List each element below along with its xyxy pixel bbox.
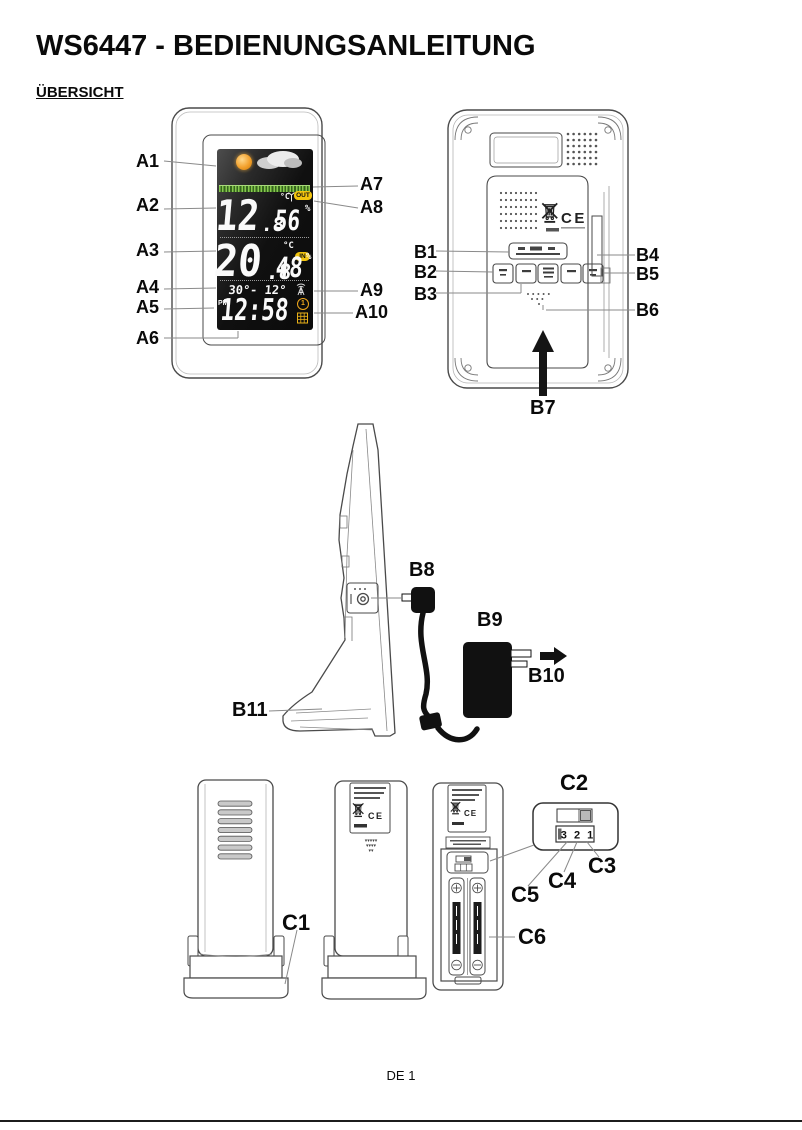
- dc-plug-body: [411, 587, 435, 613]
- side-view-console: [283, 424, 395, 736]
- label-c5: C5: [511, 884, 539, 906]
- label-a8: A8: [360, 198, 383, 216]
- svg-text:▾▾: ▾▾: [368, 848, 374, 854]
- label-a1: A1: [136, 152, 159, 170]
- indoor-temp-unit: °C: [283, 242, 294, 251]
- label-a9: A9: [360, 281, 383, 299]
- rf-tower-icon: [294, 281, 308, 296]
- vent-slats: [218, 801, 252, 859]
- sensor-front-view: [184, 780, 288, 998]
- adapter-cable: [421, 613, 429, 717]
- ce-mark: CE: [368, 811, 384, 821]
- ce-mark: CE: [464, 809, 477, 818]
- plug-pin: [511, 661, 527, 667]
- indoor-humidity-unit: %: [306, 253, 311, 262]
- label-b4: B4: [636, 246, 659, 264]
- label-c2: C2: [560, 772, 588, 794]
- label-a3: A3: [136, 241, 159, 259]
- grid-indicator-icon: [297, 312, 308, 324]
- adapter-body: [463, 642, 512, 718]
- ce-mark: CE: [561, 210, 587, 227]
- manual-page: WS6447 - BEDIENUNGSANLEITUNG ÜBERSICHT: [0, 0, 802, 1130]
- label-a7: A7: [360, 175, 383, 193]
- sensor-battery-view: CE: [433, 783, 503, 990]
- label-b1: B1: [414, 243, 437, 261]
- diagram-artwork: CE: [0, 0, 802, 1130]
- label-b2: B2: [414, 263, 437, 281]
- sensor-stand-base: [184, 978, 288, 998]
- plug-pin: [511, 650, 531, 657]
- footer-rule: [0, 1120, 802, 1122]
- label-b7: B7: [530, 398, 556, 418]
- outdoor-humidity-value: 56: [274, 207, 302, 235]
- cloud-icon: [255, 150, 303, 170]
- label-b10: B10: [528, 666, 565, 686]
- dc-plug-tip: [402, 594, 412, 601]
- sensor-stand-base: [322, 978, 426, 999]
- label-c4: C4: [548, 870, 576, 892]
- outdoor-temp-value: 12: [214, 195, 261, 237]
- label-a10: A10: [355, 303, 388, 321]
- label-a4: A4: [136, 278, 159, 296]
- label-c6: C6: [518, 926, 546, 948]
- outdoor-badge: OUT: [294, 191, 312, 200]
- label-b9: B9: [477, 610, 503, 630]
- label-c1: C1: [282, 912, 310, 934]
- label-b11: B11: [232, 700, 268, 720]
- label-a5: A5: [136, 298, 159, 316]
- indoor-humidity-value: 48: [275, 254, 304, 282]
- alarm1-icon: 1: [297, 298, 309, 310]
- sensor-back-view: CE ▾▾▾▾▾ ▾▾▾▾ ▾▾: [322, 781, 426, 999]
- label-a2: A2: [136, 196, 159, 214]
- back-view-console: CE: [448, 110, 628, 396]
- label-b3: B3: [414, 285, 437, 303]
- label-a6: A6: [136, 329, 159, 347]
- label-c3: C3: [588, 855, 616, 877]
- label-b6: B6: [636, 301, 659, 319]
- dip-switch-inset: 3 2 1: [533, 803, 618, 850]
- sun-icon: [236, 154, 252, 170]
- label-b8: B8: [409, 560, 435, 580]
- clock-time: 12:58: [219, 296, 289, 326]
- lcd-display: 12 .8 °C OUT 56 % 20 .8 °C IN 48 % 30°- …: [217, 149, 313, 330]
- dip-switch-numbers: 3 2 1: [561, 830, 595, 842]
- outdoor-humidity-unit: %: [305, 205, 310, 214]
- page-number: DE 1: [0, 1068, 802, 1083]
- label-b5: B5: [636, 265, 659, 283]
- plug-direction-arrow: [540, 647, 567, 665]
- indoor-temp-value: 20: [212, 240, 264, 284]
